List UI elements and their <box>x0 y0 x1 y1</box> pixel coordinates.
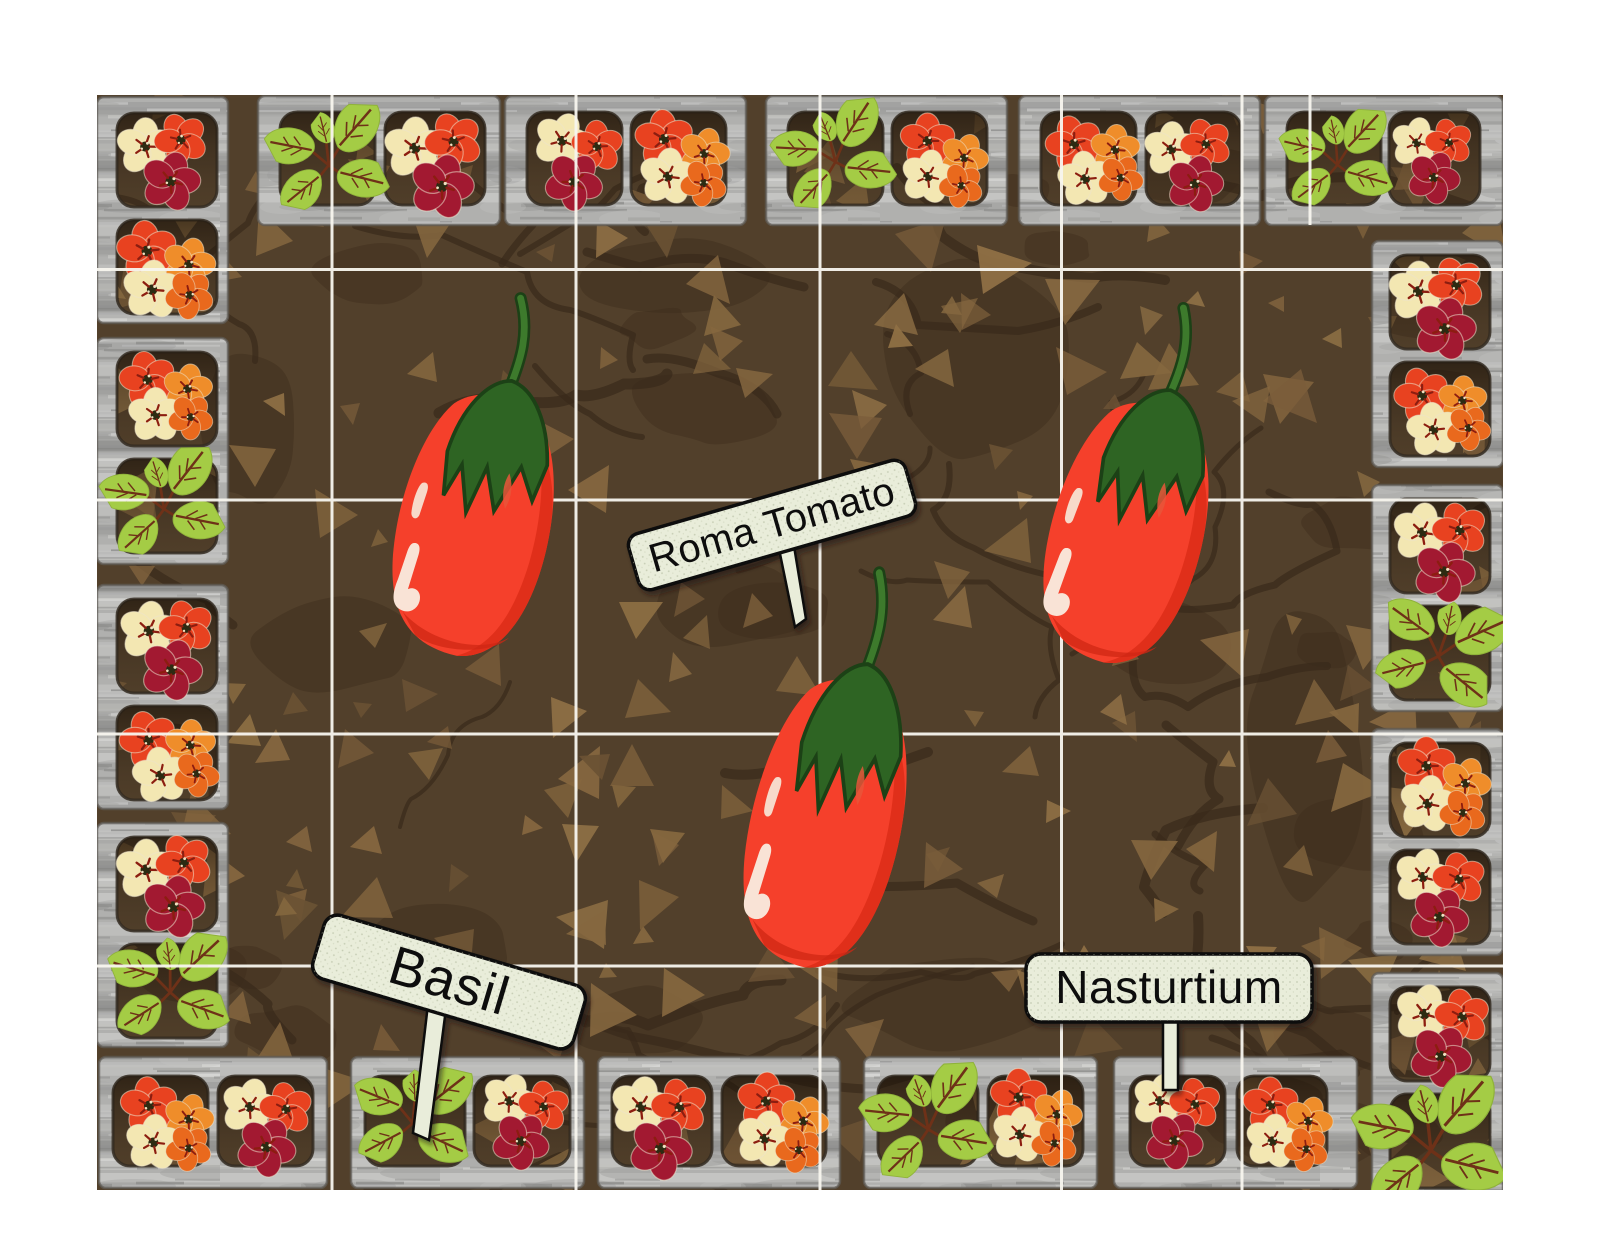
svg-text:Nasturtium: Nasturtium <box>1055 961 1282 1013</box>
